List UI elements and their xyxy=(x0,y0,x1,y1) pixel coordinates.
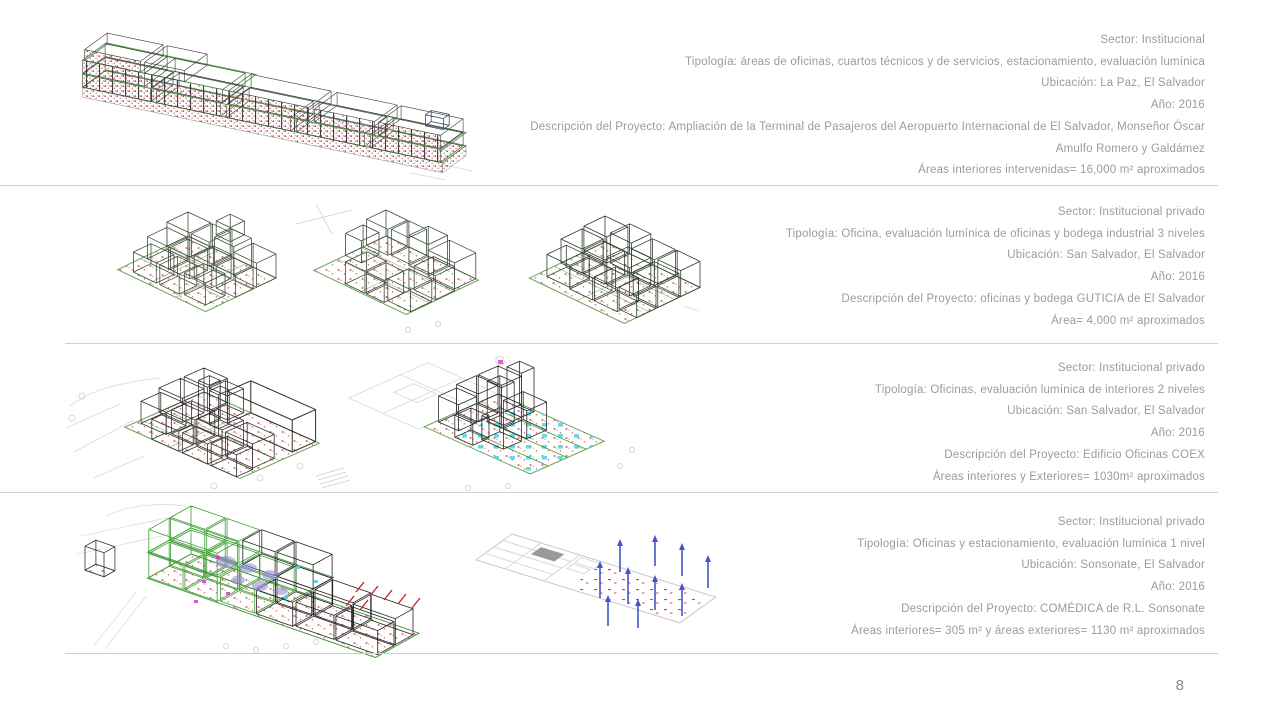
project-tipologia: Tipología: Oficina, evaluación lumínica … xyxy=(515,224,1205,246)
section-divider xyxy=(0,492,1218,493)
project-anio: Año: 2016 xyxy=(515,267,1205,289)
project-descripcion: Descripción del Proyecto: oficinas y bod… xyxy=(515,289,1205,311)
coex-wireframe-illustration-1 xyxy=(64,348,356,496)
project-1-text: Sector: Institucional Tipología: áreas d… xyxy=(515,30,1205,182)
project-anio: Año: 2016 xyxy=(515,95,1205,117)
project-sector: Sector: Institucional privado xyxy=(515,358,1205,380)
project-descripcion: Descripción del Proyecto: COMÉDICA de R.… xyxy=(515,599,1205,621)
project-sector: Sector: Institucional privado xyxy=(515,512,1205,534)
section-divider xyxy=(65,653,1218,654)
section-divider xyxy=(65,343,1218,344)
office-wireframe-illustration-2 xyxy=(288,204,483,336)
project-anio: Año: 2016 xyxy=(515,577,1205,599)
project-tipologia: Tipología: Oficinas y estacionamiento, e… xyxy=(515,534,1205,556)
project-areas: Áreas interiores= 305 m² y áreas exterio… xyxy=(515,621,1205,643)
project-2-text: Sector: Institucional privado Tipología:… xyxy=(515,202,1205,332)
project-sector: Sector: Institucional xyxy=(515,30,1205,52)
project-tipologia: Tipología: áreas de oficinas, cuartos té… xyxy=(515,52,1205,74)
project-sector: Sector: Institucional privado xyxy=(515,202,1205,224)
project-ubicacion: Ubicación: San Salvador, El Salvador xyxy=(515,401,1205,423)
project-ubicacion: Ubicación: San Salvador, El Salvador xyxy=(515,245,1205,267)
project-4-text: Sector: Institucional privado Tipología:… xyxy=(515,512,1205,642)
airport-terminal-wireframe-illustration xyxy=(80,30,475,180)
project-3-text: Sector: Institucional privado Tipología:… xyxy=(515,358,1205,488)
project-descripcion: Descripción del Proyecto: Ampliación de … xyxy=(515,117,1205,160)
page-number: 8 xyxy=(1176,677,1184,694)
project-areas: Área= 4,000 m² aproximados xyxy=(515,311,1205,333)
office-wireframe-illustration-1 xyxy=(100,200,285,335)
project-anio: Año: 2016 xyxy=(515,423,1205,445)
project-tipologia: Tipología: Oficinas, evaluación lumínica… xyxy=(515,380,1205,402)
comedica-wireframe-illustration xyxy=(76,496,476,658)
project-areas: Áreas interiores intervenidas= 16,000 m²… xyxy=(515,160,1205,182)
project-descripcion: Descripción del Proyecto: Edificio Ofici… xyxy=(515,445,1205,467)
project-ubicacion: Ubicación: Sonsonate, El Salvador xyxy=(515,555,1205,577)
project-ubicacion: Ubicación: La Paz, El Salvador xyxy=(515,73,1205,95)
section-divider xyxy=(0,185,1218,186)
project-areas: Áreas interiores y Exteriores= 1030m² ap… xyxy=(515,467,1205,489)
